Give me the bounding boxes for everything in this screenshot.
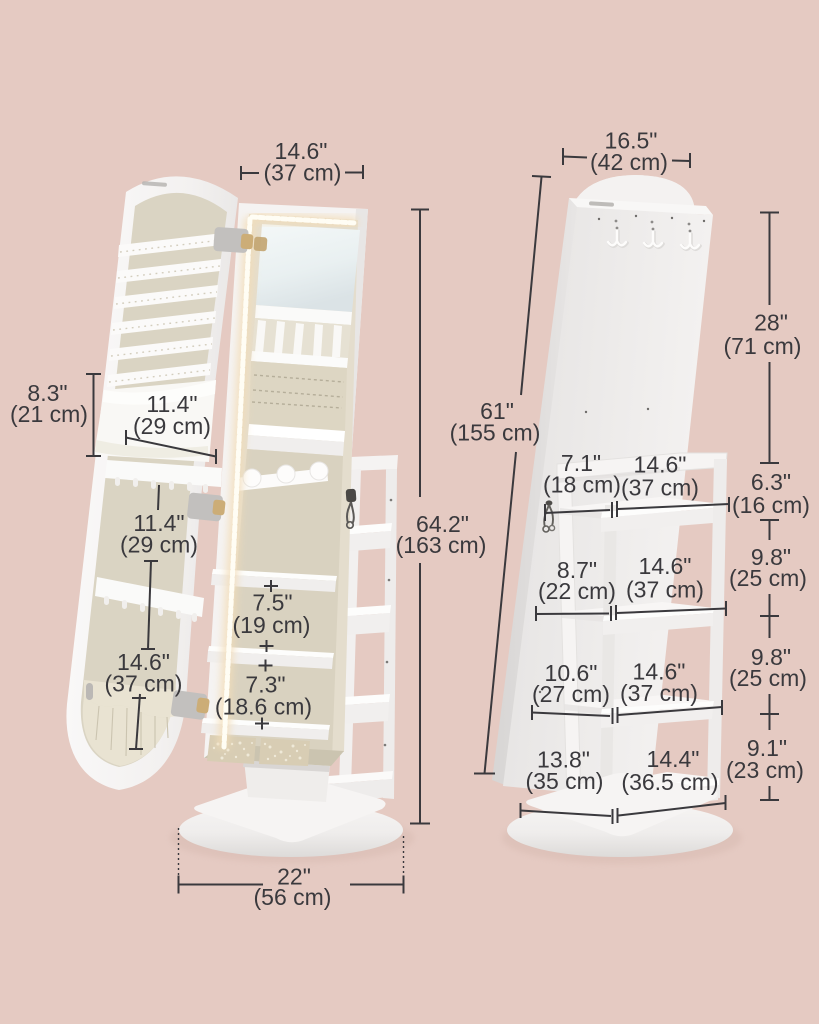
svg-text:(27 cm): (27 cm) (532, 681, 610, 707)
svg-text:(42 cm): (42 cm) (590, 149, 668, 175)
svg-text:(29 cm): (29 cm) (120, 532, 198, 558)
svg-text:(18 cm): (18 cm) (543, 472, 621, 498)
svg-text:(25 cm): (25 cm) (729, 665, 807, 691)
svg-text:(71 cm): (71 cm) (724, 333, 802, 359)
svg-text:(16 cm): (16 cm) (732, 492, 810, 518)
svg-text:(37 cm): (37 cm) (621, 475, 699, 501)
svg-text:(35 cm): (35 cm) (526, 768, 604, 794)
svg-text:(37 cm): (37 cm) (105, 671, 183, 697)
svg-text:(37 cm): (37 cm) (264, 160, 342, 186)
svg-text:(37 cm): (37 cm) (620, 680, 698, 706)
svg-text:14.4": 14.4" (647, 746, 700, 772)
svg-text:(21 cm): (21 cm) (10, 401, 88, 427)
svg-text:(19 cm): (19 cm) (233, 612, 311, 638)
svg-text:(37 cm): (37 cm) (626, 577, 704, 603)
svg-text:28": 28" (754, 310, 788, 336)
svg-text:(29 cm): (29 cm) (133, 413, 211, 439)
svg-text:(23 cm): (23 cm) (726, 757, 804, 783)
svg-text:(56 cm): (56 cm) (254, 884, 332, 910)
svg-text:(18.6 cm): (18.6 cm) (215, 694, 312, 720)
svg-text:(155 cm): (155 cm) (450, 420, 541, 446)
svg-text:(25 cm): (25 cm) (729, 565, 807, 591)
svg-text:(163 cm): (163 cm) (396, 532, 487, 558)
svg-text:(36.5 cm): (36.5 cm) (621, 769, 718, 795)
svg-text:14.6": 14.6" (639, 553, 692, 579)
svg-text:(22 cm): (22 cm) (538, 578, 616, 604)
